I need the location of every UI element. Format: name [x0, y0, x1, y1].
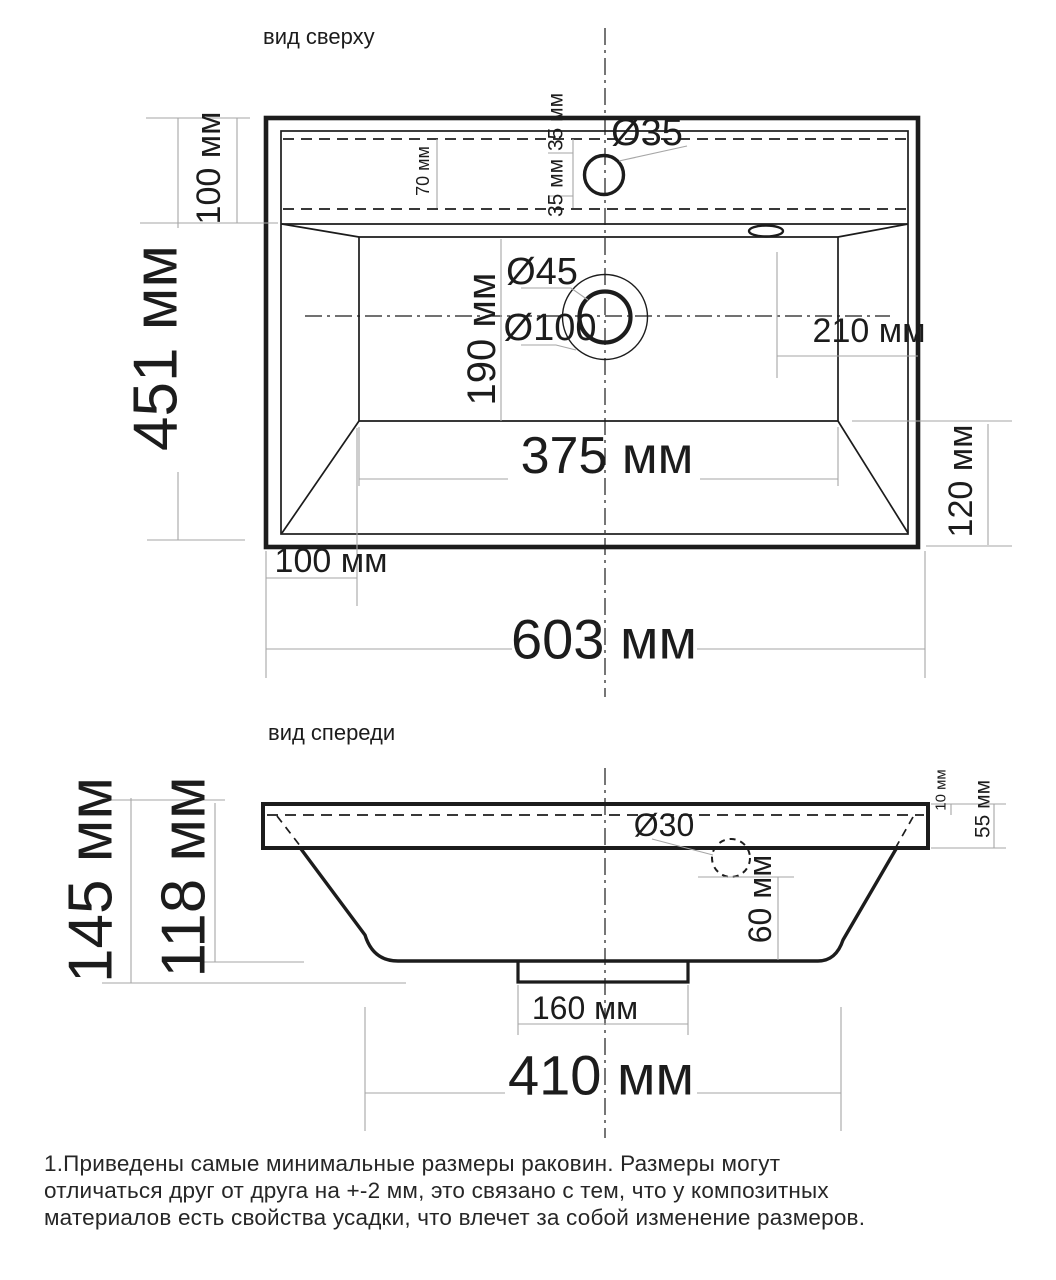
- bowl-hidden-right: [896, 817, 913, 847]
- dim-overflow-drop-label: 60 мм: [742, 855, 778, 943]
- top-view-dimension-lines: [140, 118, 1012, 678]
- dim-basin-width-label: 375 мм: [521, 427, 694, 485]
- dim-left-offset-label: 100 мм: [275, 542, 388, 580]
- front-view-title: вид спереди: [268, 720, 395, 745]
- drain-block: [518, 961, 688, 982]
- dim-drain-block-width-label: 160 мм: [532, 990, 638, 1026]
- front-view: вид спереди 145 мм 118 мм Ø30 60 мм 10 м…: [57, 720, 1007, 1138]
- footnote: 1.Приведены самые минимальные размеры ра…: [44, 1150, 1039, 1231]
- top-view-title: вид сверху: [263, 24, 375, 49]
- bowl-hidden-left: [277, 816, 301, 847]
- rim-section: [263, 804, 928, 848]
- dim-bowl-height-label: 118 мм: [150, 776, 219, 977]
- dim-recess-dia-label: Ø100: [504, 307, 597, 349]
- footnote-line-1: 1.Приведены самые минимальные размеры ра…: [44, 1150, 1039, 1177]
- sink-dimension-drawing: вид сверху: [0, 0, 1056, 1280]
- dim-total-depth-label: 451 мм: [122, 245, 191, 451]
- dim-front-wall-label: 120 мм: [942, 425, 980, 538]
- dim-overflow-dia-label: Ø30: [634, 807, 694, 843]
- dim-drain-dia-label: Ø45: [506, 251, 578, 293]
- dim-faucet-below-label: 35 мм: [545, 159, 568, 217]
- dim-bottom-width-label: 410 мм: [508, 1044, 694, 1107]
- dim-deck-depth-label: 100 мм: [190, 112, 228, 225]
- faucet-hole: [585, 156, 624, 195]
- dim-strip-label: 70 мм: [413, 146, 433, 196]
- overflow-hole-top-view: [749, 226, 783, 237]
- dim-basin-depth-label: 190 мм: [460, 273, 504, 406]
- dim-total-width-label: 603 мм: [511, 608, 697, 671]
- dim-faucet-above-label: 35 мм: [545, 93, 568, 151]
- dim-lip-label: 10 мм: [933, 769, 950, 810]
- top-view: вид сверху: [122, 24, 1013, 697]
- dim-rim-label: 55 мм: [972, 780, 995, 838]
- footnote-line-2: отличаться друг от друга на +-2 мм, это …: [44, 1177, 1039, 1204]
- dim-total-height-label: 145 мм: [57, 777, 126, 983]
- bowl-outline: [301, 849, 896, 961]
- front-view-body: [263, 804, 928, 982]
- dim-faucet-dia-label: Ø35: [611, 112, 683, 154]
- basin-bottom-rect: [359, 237, 838, 421]
- basin-wall-slope-lines: [282, 224, 908, 533]
- footnote-line-3: материалов есть свойства усадки, что вле…: [44, 1204, 1039, 1231]
- drawing-svg: вид сверху: [0, 0, 1056, 1280]
- dim-right-label: 210 мм: [813, 312, 926, 350]
